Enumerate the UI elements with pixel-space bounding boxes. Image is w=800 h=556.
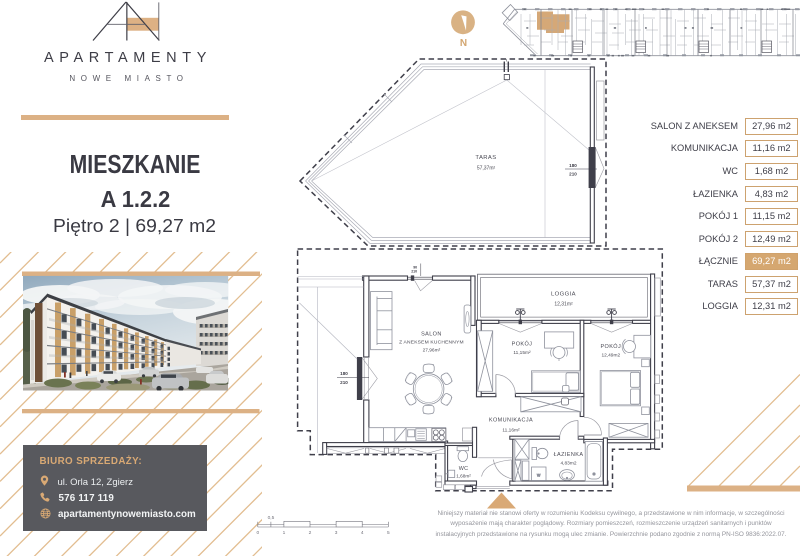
svg-text:210: 210 [411, 270, 417, 274]
svg-text:11,16m²: 11,16m² [502, 428, 520, 434]
svg-text:12,49m2: 12,49m2 [601, 353, 620, 359]
svg-text:11,15m²: 11,15m² [513, 350, 531, 356]
svg-text:180: 180 [340, 371, 348, 376]
svg-text:SALON: SALON [421, 332, 442, 338]
svg-text:0: 0 [256, 530, 259, 536]
svg-text:57,37m²: 57,37m² [477, 166, 496, 172]
svg-text:POKÓJ: POKÓJ [512, 341, 533, 348]
svg-text:4: 4 [361, 530, 364, 536]
svg-text:N: N [460, 38, 467, 49]
svg-text:5: 5 [387, 530, 390, 536]
svg-text:ŁAZIENKA: ŁAZIENKA [554, 452, 584, 458]
svg-text:POKÓJ: POKÓJ [600, 343, 621, 350]
svg-text:2: 2 [309, 530, 312, 536]
svg-text:1,68m²: 1,68m² [456, 473, 471, 478]
svg-text:0,5: 0,5 [268, 515, 275, 521]
svg-text:KOMUNIKACJA: KOMUNIKACJA [489, 418, 533, 424]
svg-text:1: 1 [283, 530, 286, 536]
svg-text:4,83m2: 4,83m2 [561, 461, 577, 467]
svg-text:WC: WC [459, 466, 469, 472]
svg-text:TARAS: TARAS [475, 155, 496, 161]
svg-text:27,96m²: 27,96m² [423, 348, 441, 354]
svg-text:210: 210 [340, 380, 348, 385]
svg-text:3: 3 [335, 530, 338, 536]
svg-text:Z ANEKSEM KUCHENNYM: Z ANEKSEM KUCHENNYM [399, 340, 464, 346]
